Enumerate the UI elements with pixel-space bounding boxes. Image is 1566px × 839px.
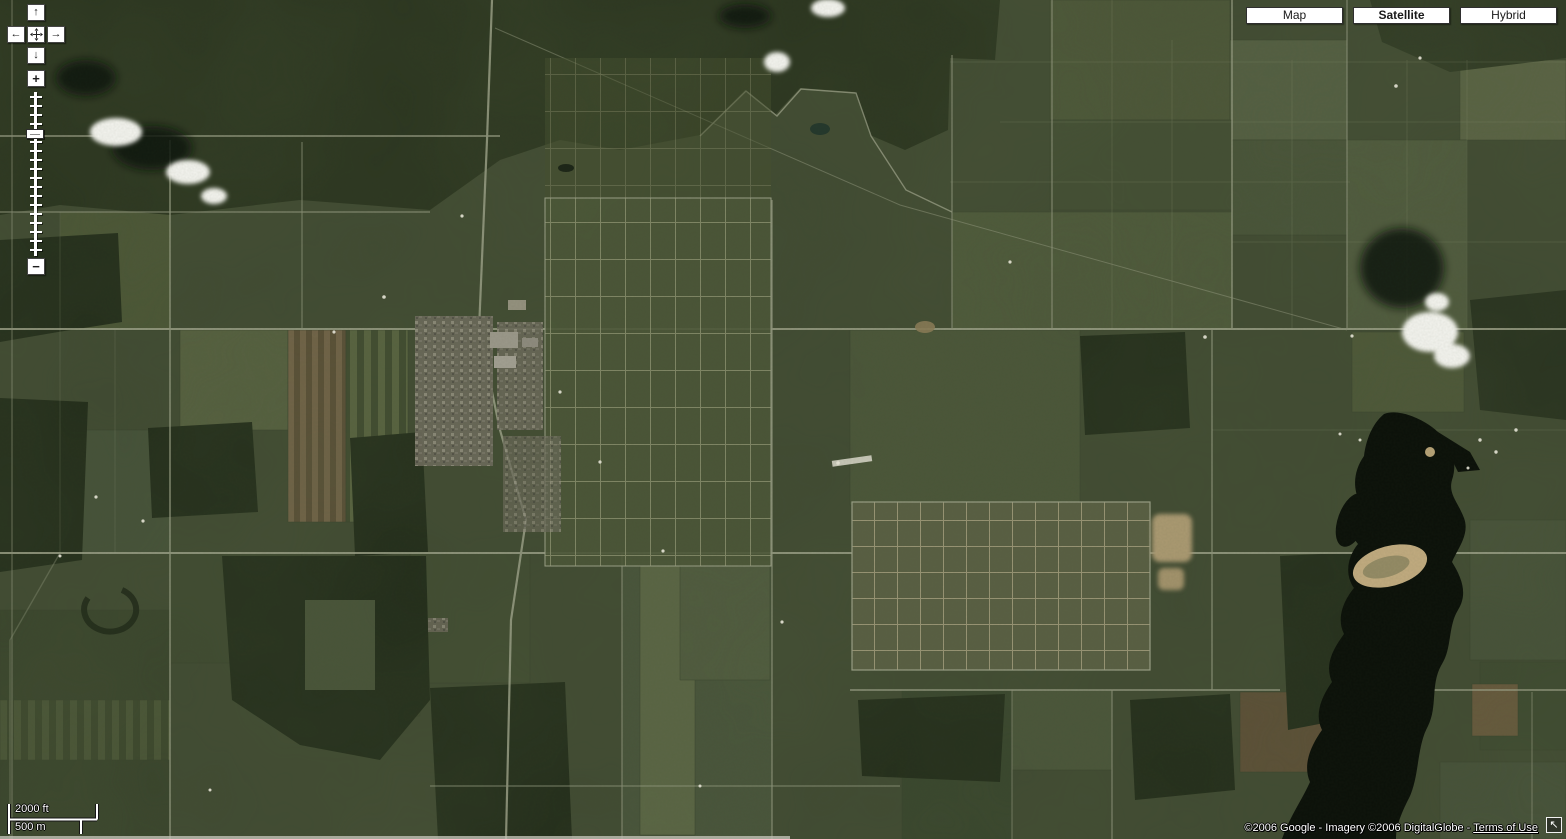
- pan-down-button[interactable]: ↓: [27, 47, 45, 64]
- arrow-right-icon: →: [51, 29, 62, 40]
- zoom-in-button[interactable]: +: [27, 70, 45, 87]
- zoom-out-button[interactable]: −: [27, 258, 45, 275]
- zoom-slider-ticks: [30, 96, 42, 254]
- minus-icon: −: [32, 260, 40, 273]
- plus-icon: +: [32, 72, 40, 85]
- terms-of-use-link[interactable]: Terms of Use: [1473, 822, 1538, 834]
- scale-bar: 2000 ft 500 m: [4, 801, 120, 838]
- pan-right-button[interactable]: →: [47, 26, 65, 43]
- collapse-arrow-icon: ↖: [1549, 820, 1558, 831]
- arrow-up-icon: ↑: [33, 7, 39, 18]
- pan-up-button[interactable]: ↑: [27, 4, 45, 21]
- copyright-text: ©2006 Google - Imagery ©2006 DigitalGlob…: [1244, 822, 1473, 834]
- pan-left-button[interactable]: ←: [7, 26, 25, 43]
- map-type-button-hybrid[interactable]: Hybrid: [1460, 7, 1557, 24]
- map-type-button-map[interactable]: Map: [1246, 7, 1343, 24]
- attribution-bar: ©2006 Google - Imagery ©2006 DigitalGlob…: [1244, 822, 1538, 834]
- zoom-slider-handle[interactable]: [26, 129, 44, 139]
- map-viewport: ↑ ← → ↓ +: [0, 0, 1566, 839]
- arrow-down-icon: ↓: [33, 50, 39, 61]
- attribution-collapse-button[interactable]: ↖: [1546, 817, 1562, 833]
- scale-metric-label: 500 m: [15, 821, 46, 833]
- scale-imperial-label: 2000 ft: [15, 803, 49, 815]
- four-way-arrows-icon: [30, 28, 43, 41]
- map-type-button-satellite[interactable]: Satellite: [1353, 7, 1450, 24]
- map-type-switcher: Map Satellite Hybrid: [1246, 7, 1557, 24]
- navigation-controls: ↑ ← → ↓ +: [0, 0, 72, 290]
- arrow-left-icon: ←: [11, 29, 22, 40]
- satellite-imagery-canvas[interactable]: [0, 0, 1566, 839]
- recenter-button[interactable]: [27, 26, 45, 43]
